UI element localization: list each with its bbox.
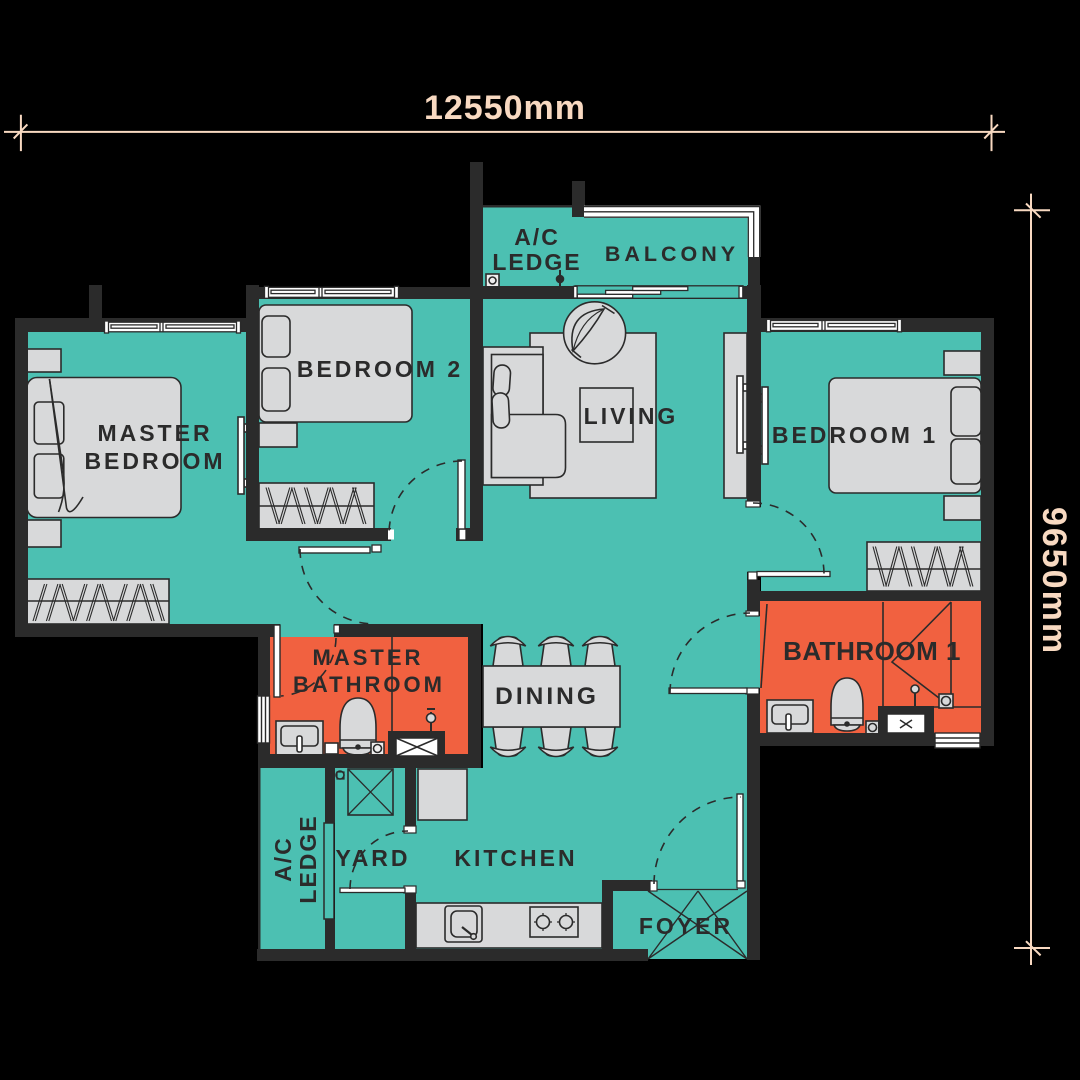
svg-text:LEDGE: LEDGE — [295, 814, 321, 903]
svg-text:BEDROOM 1: BEDROOM 1 — [772, 422, 938, 448]
svg-text:BEDROOM 2: BEDROOM 2 — [297, 356, 463, 382]
svg-text:KITCHEN: KITCHEN — [454, 845, 577, 871]
svg-text:MASTER: MASTER — [313, 645, 424, 670]
svg-text:MASTER: MASTER — [97, 420, 212, 446]
svg-text:A/C: A/C — [514, 224, 560, 250]
svg-text:BALCONY: BALCONY — [605, 242, 739, 266]
svg-text:A/C: A/C — [270, 836, 296, 882]
svg-text:BATHROOM: BATHROOM — [293, 672, 445, 697]
svg-text:YARD: YARD — [335, 845, 410, 871]
svg-text:12550mm: 12550mm — [424, 89, 586, 127]
svg-text:FOYER: FOYER — [639, 913, 733, 939]
svg-text:9650mm: 9650mm — [1035, 507, 1073, 655]
svg-text:BATHROOM 1: BATHROOM 1 — [783, 636, 961, 666]
svg-text:LIVING: LIVING — [584, 403, 679, 429]
svg-text:DINING: DINING — [495, 683, 599, 710]
svg-text:BEDROOM: BEDROOM — [84, 448, 225, 474]
svg-text:LEDGE: LEDGE — [492, 249, 581, 275]
